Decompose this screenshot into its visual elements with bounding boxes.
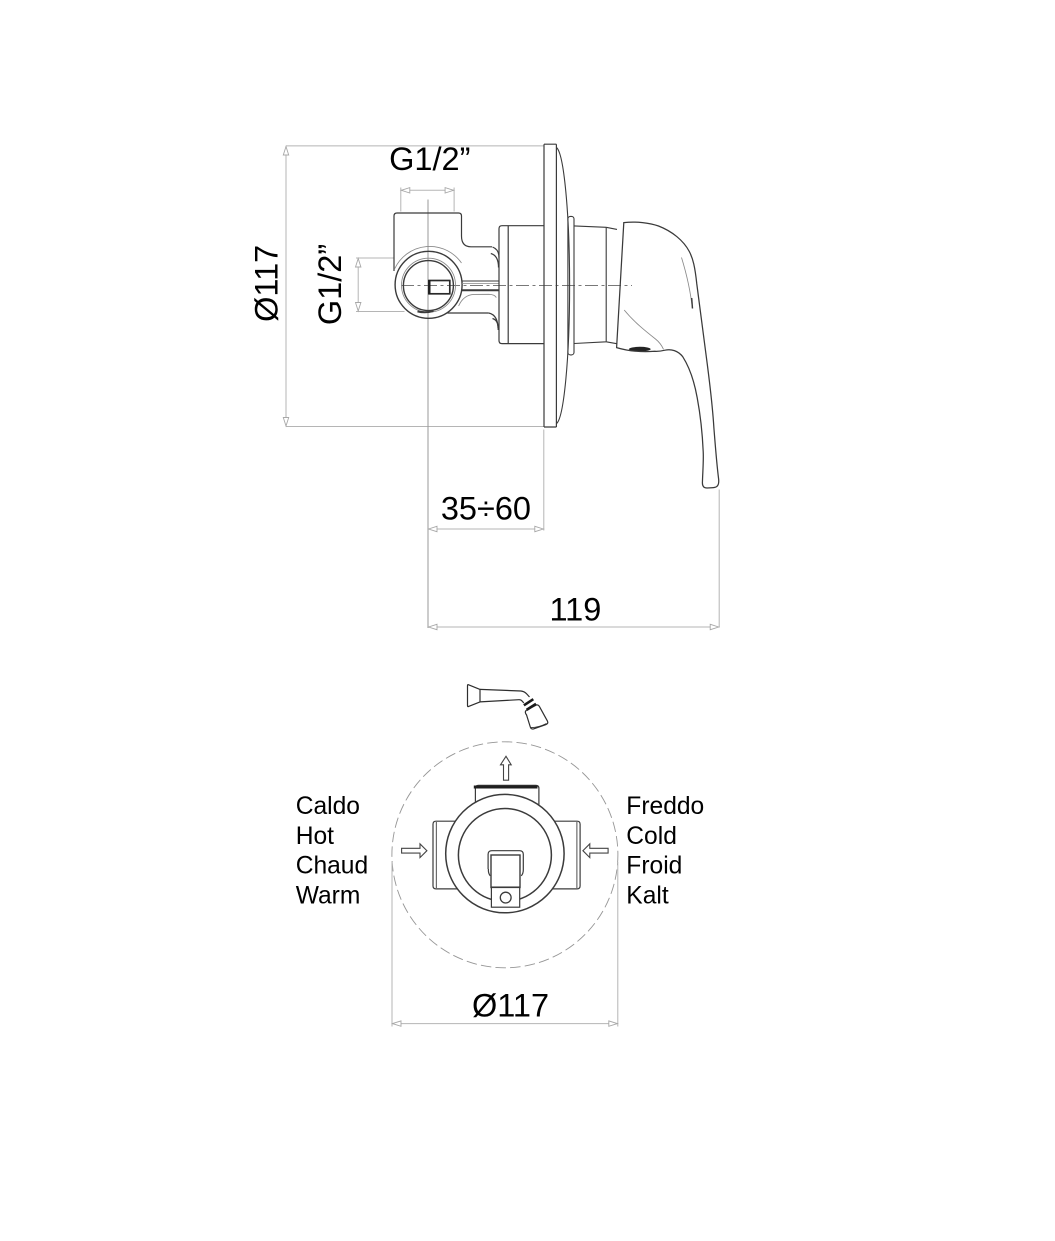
svg-text:Ø117: Ø117 (249, 245, 285, 322)
svg-text:Caldo: Caldo (296, 793, 360, 820)
svg-text:35÷60: 35÷60 (441, 491, 531, 527)
svg-text:Froid: Froid (626, 853, 682, 880)
svg-text:Ø117: Ø117 (472, 988, 549, 1024)
svg-text:Kalt: Kalt (626, 882, 669, 909)
svg-text:G1/2”: G1/2” (312, 244, 348, 325)
svg-text:Warm: Warm (296, 882, 361, 909)
svg-text:Chaud: Chaud (296, 853, 368, 880)
svg-text:119: 119 (549, 592, 601, 628)
svg-text:Cold: Cold (626, 823, 677, 850)
svg-text:G1/2”: G1/2” (389, 141, 470, 177)
svg-text:Freddo: Freddo (626, 793, 704, 820)
svg-text:Hot: Hot (296, 823, 334, 850)
